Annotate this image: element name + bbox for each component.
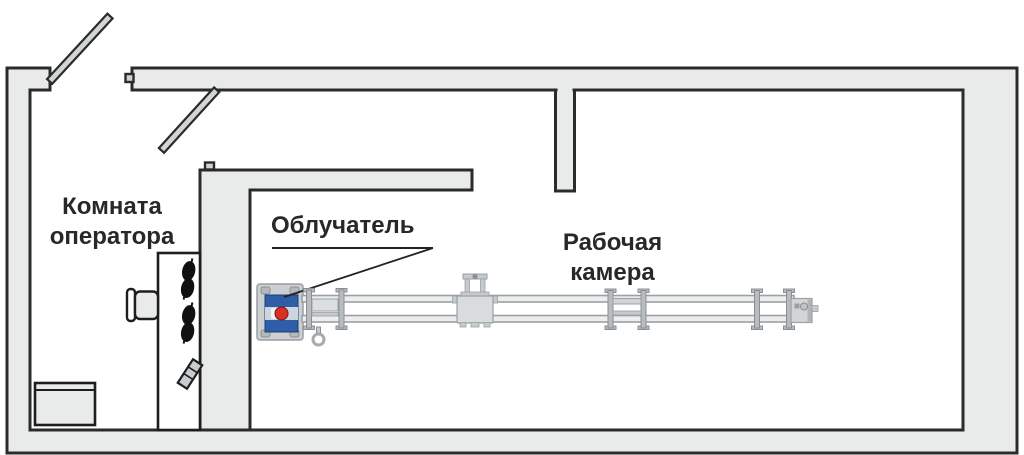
cabinet-icon [35,383,95,425]
wall-junction-patch [558,85,573,93]
working-chamber-label: Рабочая камера [545,228,680,288]
irradiator-label: Облучатель [271,211,415,241]
radiation-source-icon [275,307,288,320]
conveyor-rail-bottom [302,316,794,323]
operator-room-label: Комната оператора [37,192,187,252]
chair-icon [127,289,158,321]
door-leaf-icon [47,14,113,84]
conveyor-rail-top [302,296,794,303]
facility-floor-plan: Комната оператора Облучатель Рабочая кам… [0,0,1024,455]
control-desk-icon [158,253,200,430]
hinge-nub-icon [126,74,134,82]
conveyor-pusher-unit [453,274,498,327]
hinge-nub-icon [205,163,214,170]
operator-room-equipment [35,253,202,430]
door-leaf-icon [159,87,219,152]
labyrinth-stub-wall [556,90,575,191]
